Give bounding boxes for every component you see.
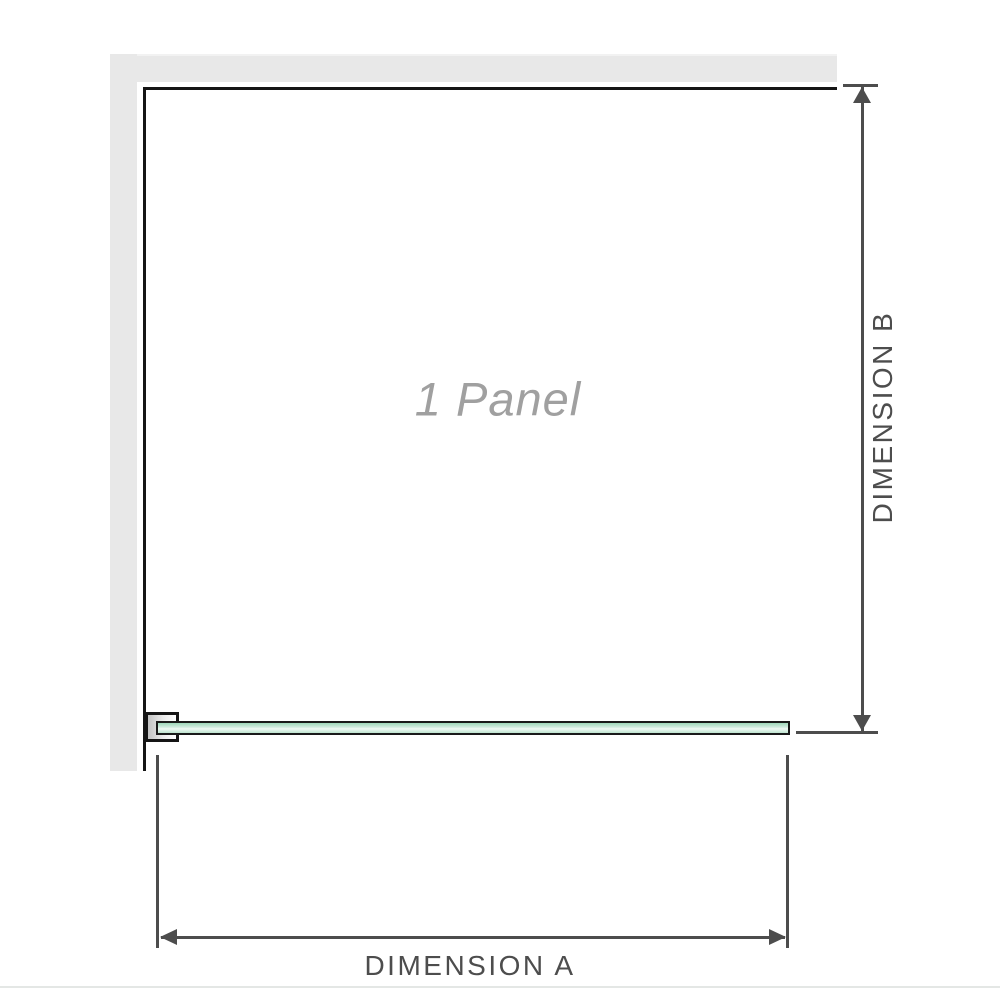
dimension-b-bottom-tick	[796, 731, 878, 734]
panel-count-label: 1 Panel	[415, 372, 581, 427]
arrow-up-icon	[853, 87, 871, 103]
arrow-right-icon	[769, 929, 786, 945]
dimension-a-label: DIMENSION A	[364, 950, 575, 982]
wall-left	[110, 54, 137, 771]
dimension-a-line	[161, 936, 785, 939]
arrow-left-icon	[160, 929, 177, 945]
dimension-a-right-extension-line	[786, 755, 789, 948]
wall-face-line-left	[143, 87, 146, 771]
dimension-b-line	[861, 87, 864, 731]
wall-face-line-top	[143, 87, 837, 90]
dimension-b-label: DIMENSION B	[867, 311, 899, 524]
dimension-a-left-extension-line	[156, 755, 159, 948]
glass-panel	[156, 721, 790, 735]
wall-top	[110, 54, 837, 82]
arrow-down-icon	[853, 715, 871, 731]
panel-dimension-diagram: 1 Panel DIMENSION B DIMENSION A	[0, 0, 1000, 1000]
bottom-separator	[0, 986, 1000, 988]
